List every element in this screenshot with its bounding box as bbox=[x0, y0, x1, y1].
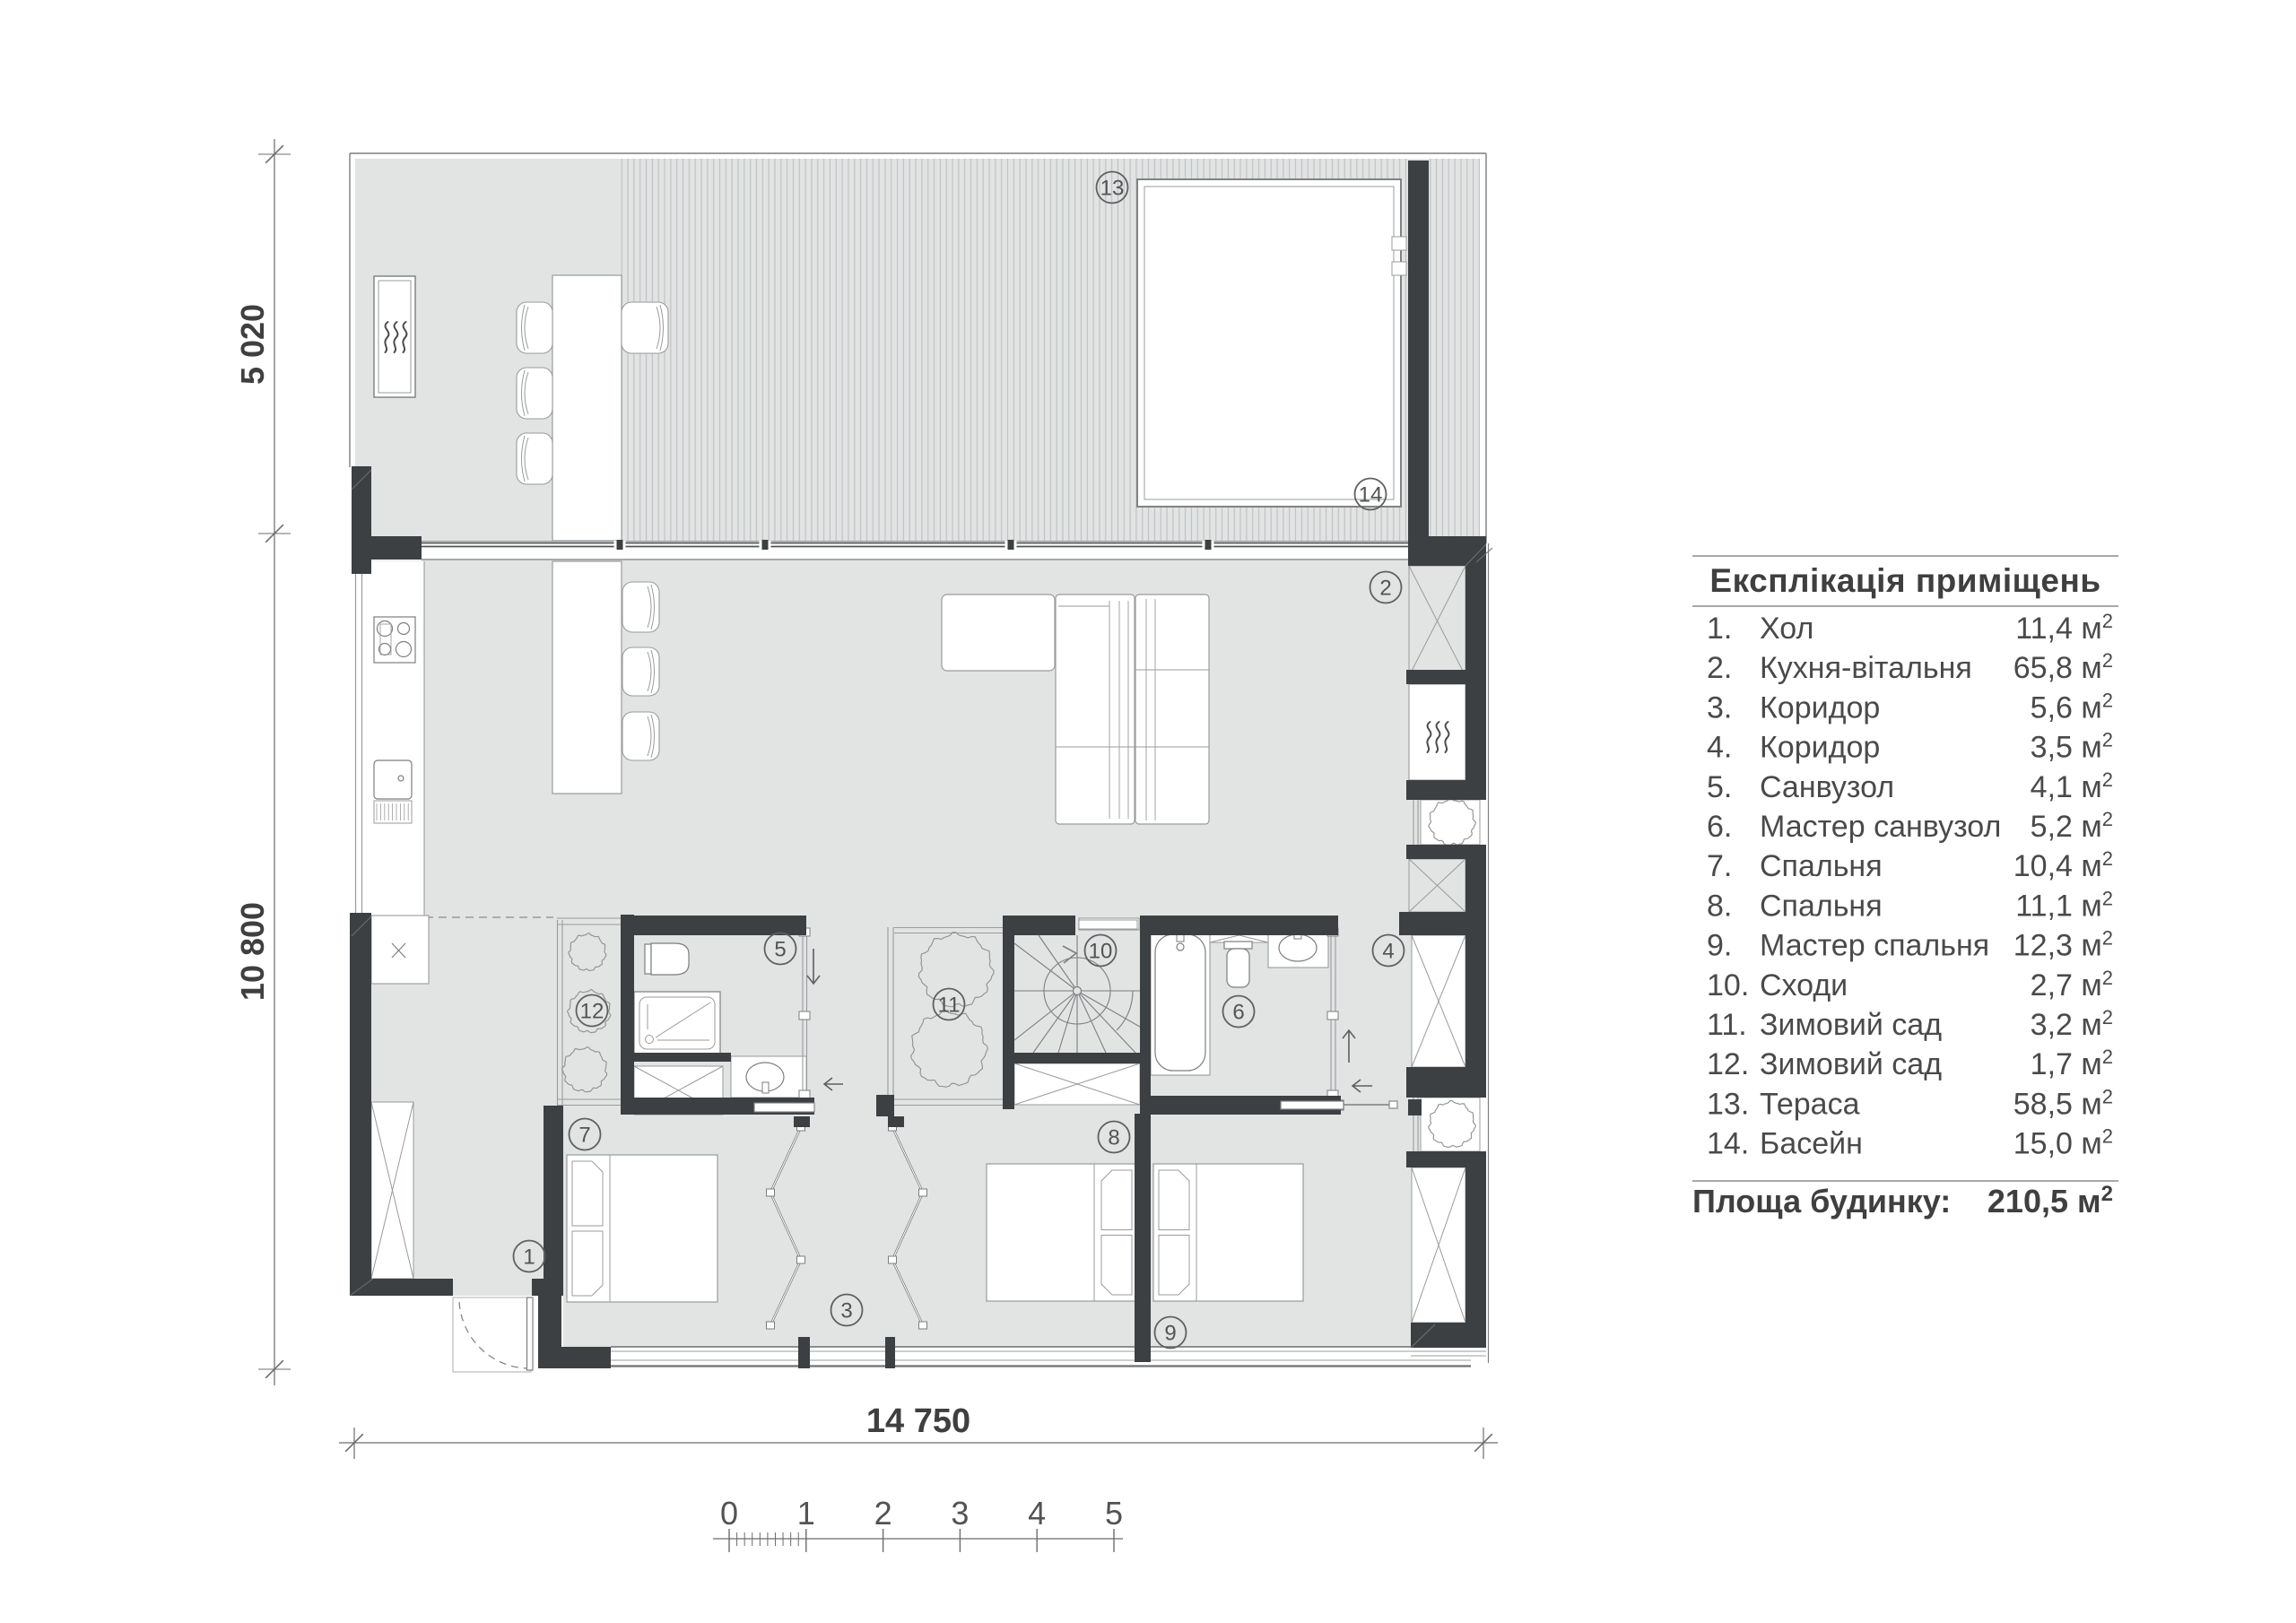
svg-text:Хол: Хол bbox=[1760, 612, 1813, 646]
svg-text:Кухня-вітальня: Кухня-вітальня bbox=[1760, 651, 1972, 685]
svg-text:6: 6 bbox=[1232, 1001, 1244, 1025]
svg-text:14: 14 bbox=[1359, 483, 1383, 508]
svg-text:12: 12 bbox=[580, 1000, 604, 1024]
svg-text:6.: 6. bbox=[1707, 810, 1732, 844]
svg-text:65,8 м2: 65,8 м2 bbox=[2013, 649, 2113, 685]
svg-text:4: 4 bbox=[1028, 1495, 1046, 1532]
svg-text:Санвузол: Санвузол bbox=[1760, 770, 1894, 804]
svg-text:1: 1 bbox=[523, 1245, 535, 1270]
svg-text:14.: 14. bbox=[1707, 1127, 1749, 1161]
svg-text:3,2 м2: 3,2 м2 bbox=[2031, 1006, 2113, 1042]
svg-text:14 750: 14 750 bbox=[866, 1402, 970, 1440]
svg-text:10,4 м2: 10,4 м2 bbox=[2013, 847, 2113, 883]
svg-text:9.: 9. bbox=[1707, 929, 1732, 963]
svg-text:10 800: 10 800 bbox=[234, 902, 271, 1001]
svg-text:Басейн: Басейн bbox=[1760, 1127, 1863, 1161]
svg-text:12.: 12. bbox=[1707, 1047, 1749, 1081]
svg-text:9: 9 bbox=[1164, 1322, 1176, 1346]
svg-text:2,7 м2: 2,7 м2 bbox=[2031, 967, 2113, 1002]
svg-text:2.: 2. bbox=[1707, 651, 1732, 685]
svg-text:Зимовий сад: Зимовий сад bbox=[1760, 1047, 1942, 1081]
svg-text:210,5 м2: 210,5 м2 bbox=[1987, 1182, 2113, 1219]
svg-text:5.: 5. bbox=[1707, 770, 1732, 804]
svg-text:2: 2 bbox=[874, 1495, 892, 1532]
svg-text:0: 0 bbox=[720, 1495, 738, 1532]
svg-text:5: 5 bbox=[1105, 1495, 1123, 1532]
svg-text:Коридор: Коридор bbox=[1760, 690, 1880, 725]
svg-text:11.: 11. bbox=[1707, 1008, 1747, 1042]
svg-text:11,4 м2: 11,4 м2 bbox=[2015, 610, 2113, 646]
svg-text:1: 1 bbox=[797, 1495, 815, 1532]
svg-text:11,1 м2: 11,1 м2 bbox=[2015, 887, 2113, 923]
svg-text:15,0 м2: 15,0 м2 bbox=[2013, 1125, 2113, 1161]
svg-text:58,5 м2: 58,5 м2 bbox=[2013, 1085, 2113, 1121]
svg-text:Коридор: Коридор bbox=[1760, 731, 1880, 765]
svg-text:5: 5 bbox=[774, 938, 786, 962]
svg-text:10.: 10. bbox=[1707, 968, 1749, 1002]
svg-text:7: 7 bbox=[578, 1124, 590, 1148]
svg-text:5,6 м2: 5,6 м2 bbox=[2031, 689, 2113, 725]
svg-text:10: 10 bbox=[1089, 940, 1113, 964]
svg-text:2: 2 bbox=[1379, 577, 1391, 601]
svg-text:13: 13 bbox=[1100, 177, 1125, 201]
svg-text:3: 3 bbox=[840, 1299, 852, 1324]
svg-text:3.: 3. bbox=[1707, 690, 1732, 725]
svg-text:5,2 м2: 5,2 м2 bbox=[2031, 808, 2113, 844]
svg-text:1,7 м2: 1,7 м2 bbox=[2031, 1046, 2113, 1081]
svg-text:Мастер санвузол: Мастер санвузол bbox=[1760, 810, 2001, 844]
svg-text:7.: 7. bbox=[1707, 849, 1732, 883]
svg-text:3,5 м2: 3,5 м2 bbox=[2031, 729, 2113, 765]
svg-text:Сходи: Сходи bbox=[1760, 968, 1848, 1002]
svg-text:11: 11 bbox=[938, 994, 961, 1018]
svg-text:12,3 м2: 12,3 м2 bbox=[2013, 927, 2113, 963]
svg-text:Спальня: Спальня bbox=[1760, 889, 1883, 923]
svg-text:Спальня: Спальня bbox=[1760, 849, 1883, 883]
svg-text:1.: 1. bbox=[1707, 612, 1732, 646]
svg-text:Мастер спальня: Мастер спальня bbox=[1760, 929, 1989, 963]
svg-text:8: 8 bbox=[1108, 1126, 1119, 1150]
svg-text:5 020: 5 020 bbox=[234, 304, 271, 385]
svg-text:4.: 4. bbox=[1707, 731, 1732, 765]
svg-text:4: 4 bbox=[1382, 940, 1394, 964]
svg-text:13.: 13. bbox=[1707, 1087, 1749, 1121]
svg-text:4,1 м2: 4,1 м2 bbox=[2031, 768, 2113, 804]
svg-text:3: 3 bbox=[951, 1495, 969, 1532]
svg-text:Тераса: Тераса bbox=[1760, 1087, 1860, 1121]
svg-text:Зимовий сад: Зимовий сад bbox=[1760, 1008, 1942, 1042]
svg-text:Експлікація приміщень: Експлікація приміщень bbox=[1709, 562, 2100, 599]
svg-text:8.: 8. bbox=[1707, 889, 1732, 923]
svg-text:Площа будинку:: Площа будинку: bbox=[1692, 1183, 1951, 1219]
